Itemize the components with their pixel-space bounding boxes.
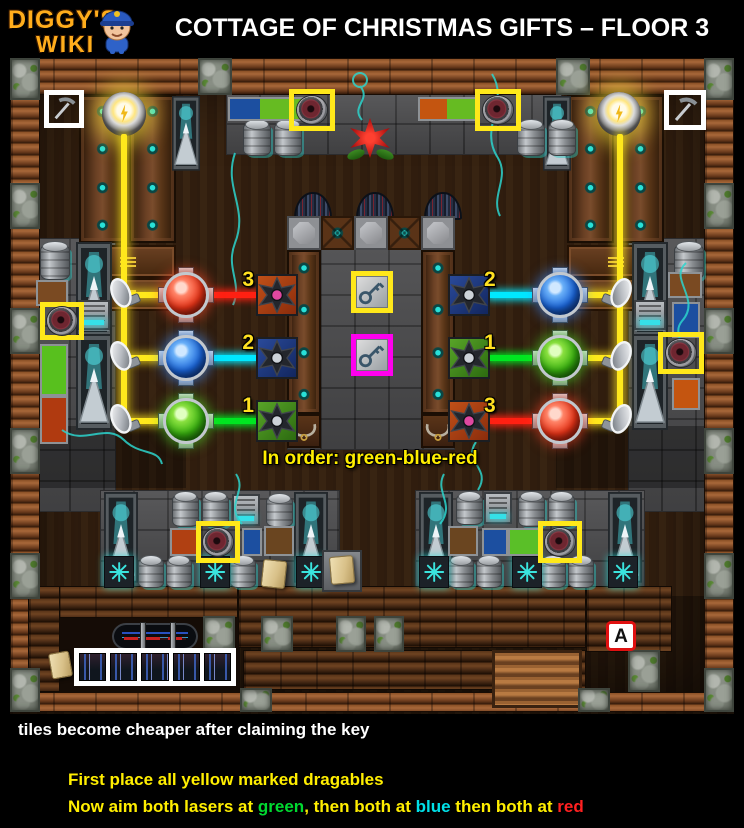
cart-wheel-dragable[interactable] bbox=[545, 528, 575, 556]
footer-step-2-segment: then both at bbox=[451, 797, 558, 816]
key-icon bbox=[357, 340, 387, 370]
supply-barrel bbox=[266, 496, 293, 527]
vault-tile-wood bbox=[388, 216, 421, 250]
stone-block bbox=[10, 428, 40, 474]
stone-block bbox=[10, 668, 40, 712]
stone-block bbox=[203, 616, 235, 652]
crystal-beacon bbox=[608, 492, 642, 560]
resource-bar bbox=[668, 272, 702, 298]
wooden-door bbox=[492, 650, 582, 708]
vault-tile-metal bbox=[287, 216, 321, 250]
wooden-wall bbox=[10, 692, 734, 712]
resource-bar bbox=[672, 378, 700, 410]
laser-beam-blue bbox=[488, 292, 534, 298]
resource-bar bbox=[264, 526, 294, 556]
vent-machine bbox=[484, 492, 512, 524]
laser-order-number: 1 bbox=[230, 394, 254, 418]
supply-barrel bbox=[172, 494, 199, 527]
stone-block bbox=[628, 650, 660, 692]
resource-bar bbox=[508, 528, 542, 556]
supply-barrel bbox=[138, 558, 164, 588]
code-tile[interactable] bbox=[79, 653, 106, 681]
laser-lens-green[interactable] bbox=[532, 330, 588, 386]
laser-order-number: 2 bbox=[230, 331, 254, 355]
footer-step-2-segment: green bbox=[258, 797, 304, 816]
laser-mirror[interactable] bbox=[103, 398, 143, 440]
laser-lens-blue[interactable] bbox=[532, 267, 588, 323]
footer-step-2-segment: , then both at bbox=[304, 797, 415, 816]
stone-block bbox=[336, 616, 366, 652]
laser-beam-red bbox=[212, 292, 258, 298]
page-title: COTTAGE OF CHRISTMAS GIFTS – FLOOR 3 bbox=[150, 14, 734, 43]
vault-tile-metal bbox=[421, 216, 455, 250]
site-logo-line2: WIKI bbox=[36, 31, 95, 58]
stone-block bbox=[704, 668, 734, 712]
wooden-wall bbox=[58, 586, 238, 618]
scroll-note bbox=[261, 559, 288, 589]
laser-gate-green bbox=[256, 400, 298, 442]
footer-tip-key: tiles become cheaper after claiming the … bbox=[18, 720, 369, 740]
pickaxe-icon bbox=[49, 95, 79, 123]
footer-step-2-segment: blue bbox=[416, 797, 451, 816]
yellow-marker-box[interactable] bbox=[475, 89, 521, 131]
order-note: In order: green-blue-red bbox=[250, 448, 490, 470]
gear-snowflake bbox=[608, 556, 638, 588]
laser-beam-red bbox=[488, 418, 534, 424]
supply-barrel bbox=[548, 122, 576, 156]
stone-block bbox=[704, 428, 734, 474]
stone-block bbox=[704, 58, 734, 100]
laser-beam-blue bbox=[212, 355, 258, 361]
laser-gate-blue bbox=[256, 337, 298, 379]
wire-machine bbox=[112, 623, 198, 650]
key-item[interactable] bbox=[356, 276, 388, 308]
code-tile[interactable] bbox=[173, 653, 200, 681]
footer-step-2-segment: Now aim both lasers at bbox=[68, 797, 258, 816]
footer-step-1: First place all yellow marked dragables bbox=[68, 770, 384, 790]
white-marker-strip[interactable] bbox=[74, 648, 236, 686]
crystal-beacon bbox=[104, 492, 138, 560]
stone-block bbox=[704, 308, 734, 354]
stone-block bbox=[556, 58, 590, 95]
vault-tile-wood bbox=[321, 216, 354, 250]
resource-bar bbox=[40, 344, 68, 396]
laser-order-number: 1 bbox=[484, 331, 508, 355]
wiki-guide-page: DIGGY'S WIKI COTTAGE OF CHRISTMAS GIFTS … bbox=[0, 0, 744, 828]
laser-emitter bbox=[597, 92, 641, 136]
code-tile[interactable] bbox=[141, 653, 168, 681]
cart-wheel-dragable[interactable] bbox=[47, 307, 77, 335]
crystal-beacon bbox=[172, 96, 200, 152]
gear-snowflake bbox=[419, 556, 449, 588]
pickaxe-icon bbox=[669, 95, 701, 125]
resource-bar bbox=[242, 528, 262, 556]
stone-block bbox=[240, 688, 272, 712]
footer-step-2-segment: red bbox=[557, 797, 583, 816]
laser-beam-green bbox=[212, 418, 258, 424]
yellow-marker-box[interactable] bbox=[289, 89, 335, 131]
stone-block bbox=[261, 616, 293, 652]
laser-order-number: 3 bbox=[230, 268, 254, 292]
cart-wheel-dragable[interactable] bbox=[203, 528, 233, 556]
supply-barrel bbox=[40, 244, 70, 280]
white-marker-box[interactable] bbox=[664, 90, 706, 130]
stone-block bbox=[374, 616, 404, 652]
stone-block bbox=[10, 58, 40, 100]
cart-wheel-dragable[interactable] bbox=[297, 96, 327, 124]
stone-block bbox=[10, 308, 40, 354]
laser-mirror[interactable] bbox=[103, 272, 143, 314]
laser-mirror[interactable] bbox=[599, 398, 639, 440]
supply-barrel bbox=[448, 558, 474, 588]
supply-barrel bbox=[166, 558, 192, 588]
yellow-marker-box[interactable] bbox=[658, 332, 704, 374]
laser-lens-blue[interactable] bbox=[158, 330, 214, 386]
laser-mirror[interactable] bbox=[599, 335, 639, 377]
supply-barrel bbox=[476, 558, 502, 588]
stone-block bbox=[704, 183, 734, 229]
cart-wheel-dragable[interactable] bbox=[666, 339, 696, 367]
scroll-note bbox=[48, 650, 73, 679]
diggy-character-icon bbox=[90, 2, 144, 56]
supply-barrel bbox=[517, 122, 545, 156]
scroll-note bbox=[329, 555, 355, 585]
resource-bar bbox=[448, 526, 478, 556]
laser-emitter bbox=[102, 92, 146, 136]
stone-block bbox=[198, 58, 232, 95]
stone-block bbox=[10, 183, 40, 229]
white-marker-box[interactable] bbox=[44, 90, 84, 128]
key-item[interactable] bbox=[356, 339, 388, 371]
area-label-a: A bbox=[606, 621, 636, 651]
yellow-marker-box[interactable] bbox=[40, 302, 84, 340]
laser-mirror[interactable] bbox=[103, 335, 143, 377]
gear-snowflake bbox=[104, 556, 134, 588]
laser-lens-red[interactable] bbox=[158, 267, 214, 323]
footer-step-2: Now aim both lasers at green, then both … bbox=[68, 797, 584, 817]
vault-tile-metal bbox=[354, 216, 388, 250]
yellow-marker-box[interactable] bbox=[196, 521, 240, 563]
laser-beam-green bbox=[488, 355, 534, 361]
laser-mirror[interactable] bbox=[599, 272, 639, 314]
laser-lens-red[interactable] bbox=[532, 393, 588, 449]
yellow-marker-box[interactable] bbox=[538, 521, 582, 563]
laser-order-number: 2 bbox=[484, 268, 508, 292]
key-icon bbox=[357, 277, 387, 307]
cart-wheel-dragable[interactable] bbox=[483, 96, 513, 124]
stone-block bbox=[704, 553, 734, 599]
magenta-marker-box[interactable] bbox=[351, 334, 393, 376]
laser-order-number: 3 bbox=[484, 394, 508, 418]
stone-block bbox=[578, 688, 610, 712]
stone-block bbox=[10, 553, 40, 599]
resource-bar bbox=[40, 396, 68, 444]
code-tile[interactable] bbox=[204, 653, 231, 681]
supply-barrel bbox=[243, 122, 271, 156]
code-tile[interactable] bbox=[110, 653, 137, 681]
laser-gate-red bbox=[256, 274, 298, 316]
resource-bar bbox=[418, 97, 480, 121]
resource-bar bbox=[482, 528, 508, 556]
laser-lens-green[interactable] bbox=[158, 393, 214, 449]
wooden-wall bbox=[10, 58, 734, 95]
supply-barrel bbox=[456, 494, 483, 525]
yellow-marker-box[interactable] bbox=[351, 271, 393, 313]
